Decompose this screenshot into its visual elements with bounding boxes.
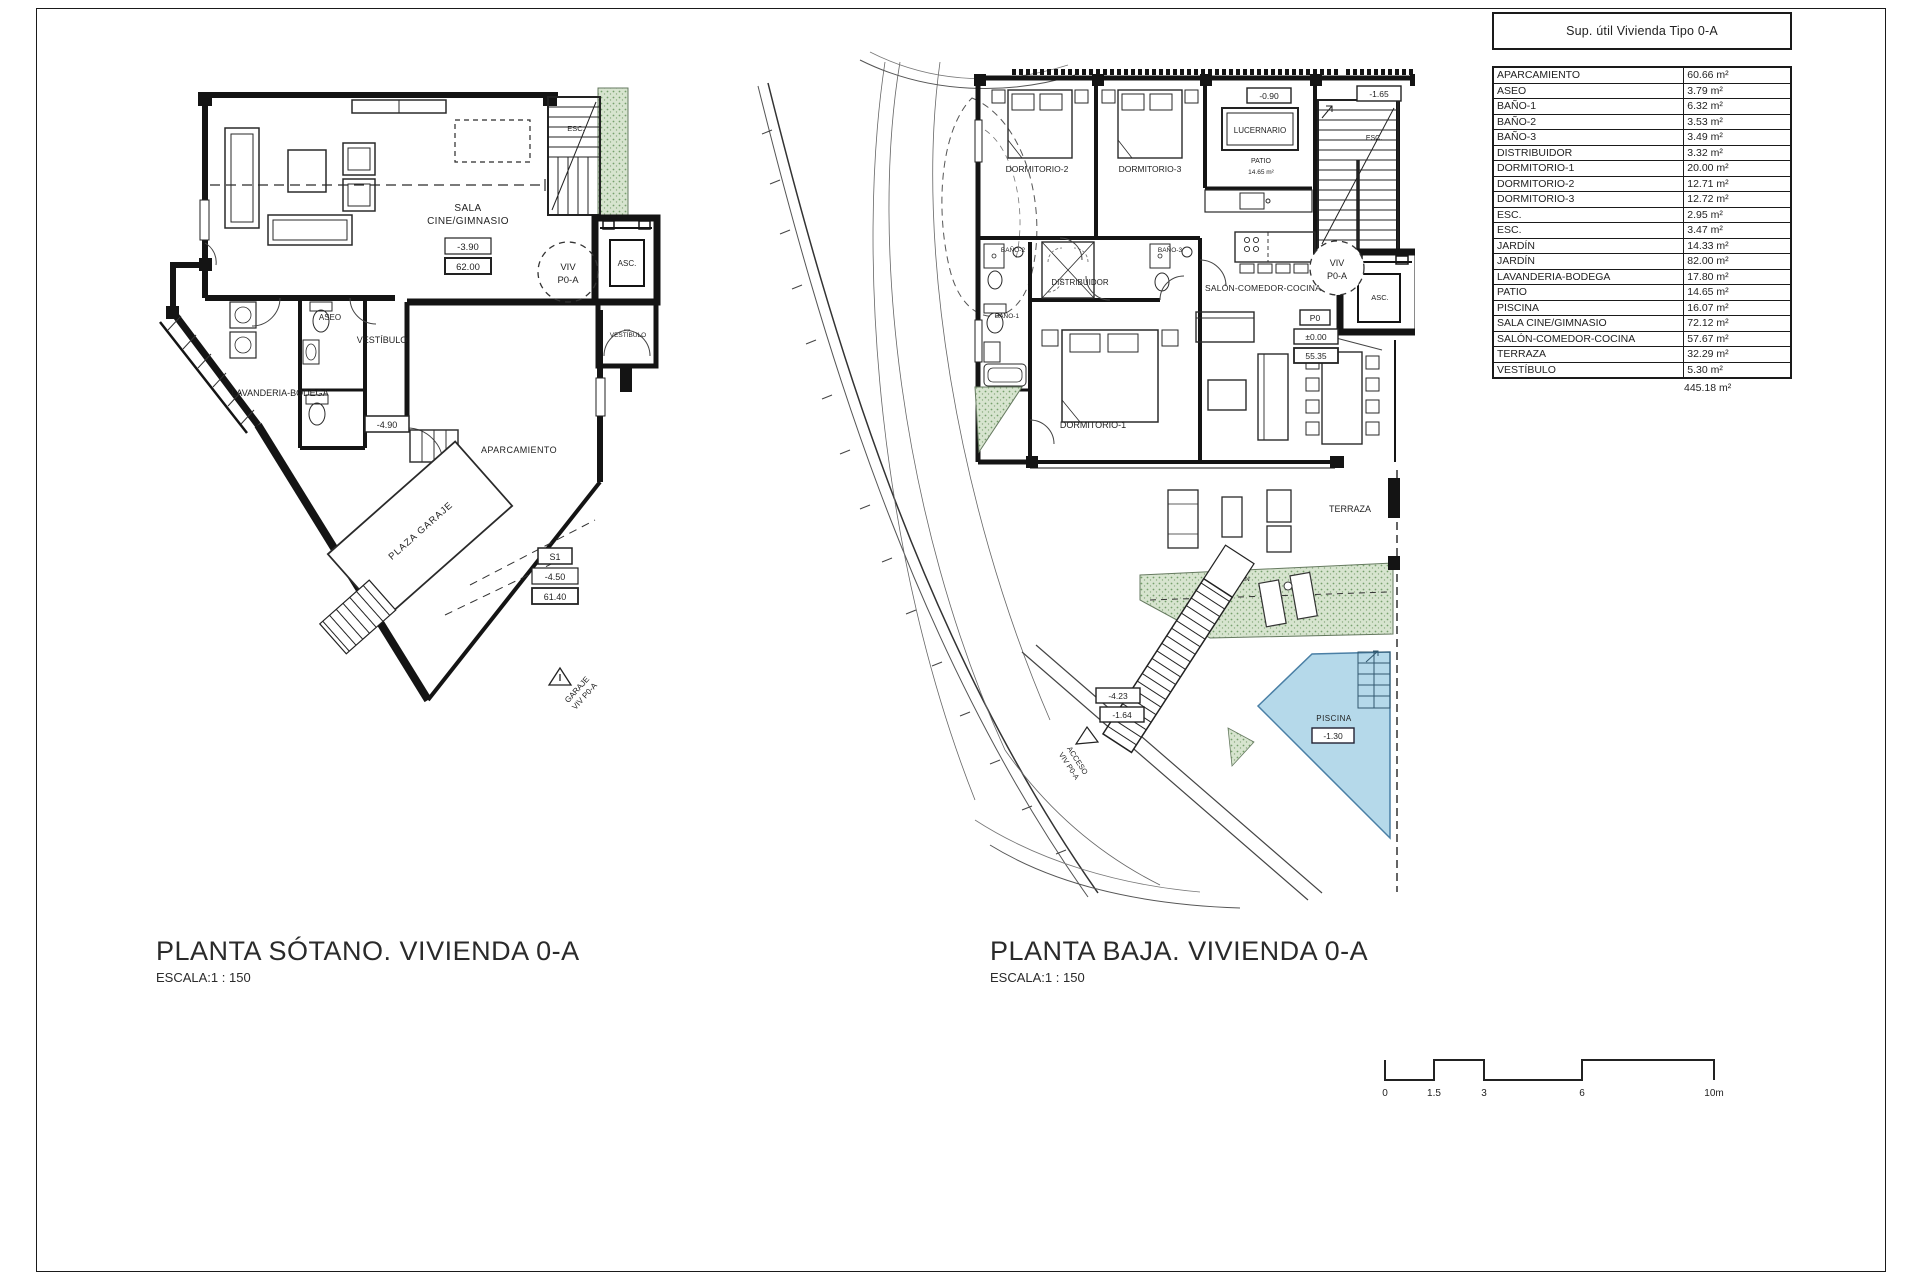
baja-patio: LUCERNARIO PATIO 14.65 m² -0.90 bbox=[1222, 88, 1298, 176]
table-row: JARDÍN82.00 m² bbox=[1493, 254, 1791, 270]
sotano-title: PLANTA SÓTANO. VIVIENDA 0-A bbox=[156, 936, 580, 967]
sotano-title-block: PLANTA SÓTANO. VIVIENDA 0-A ESCALA:1 : 1… bbox=[156, 936, 580, 985]
patio-elev-box: -0.90 bbox=[1259, 91, 1279, 101]
aparcamiento-label: APARCAMIENTO bbox=[481, 445, 557, 455]
p0-box: P0 bbox=[1310, 313, 1321, 323]
baja-stairs: ESC. -1.65 bbox=[1318, 86, 1401, 250]
garage-elev-box: -4.50 bbox=[545, 572, 566, 582]
scale-bar-profile bbox=[1385, 1060, 1714, 1080]
area-value: 14.65 m² bbox=[1684, 285, 1791, 301]
sotano-garden-strip bbox=[598, 88, 628, 218]
area-value: 57.67 m² bbox=[1684, 331, 1791, 347]
table-row: SALÓN-COMEDOR-COCINA57.67 m² bbox=[1493, 331, 1791, 347]
baja-terraza-furniture bbox=[1168, 490, 1291, 552]
area-value: 3.53 m² bbox=[1684, 114, 1791, 130]
salon-area-box: 55.35 bbox=[1305, 351, 1327, 361]
lucernario-label: LUCERNARIO bbox=[1234, 126, 1286, 135]
graphic-scale-bar: 0 1.5 3 6 10m bbox=[1380, 1046, 1725, 1106]
baja-green-triangle bbox=[975, 387, 1022, 452]
area-value: 3.47 m² bbox=[1684, 223, 1791, 239]
dormitorio2-label: DORMITORIO-2 bbox=[1006, 164, 1069, 174]
area-value: 14.33 m² bbox=[1684, 238, 1791, 254]
piscina-elev-box: -1.30 bbox=[1323, 731, 1343, 741]
room-label: BAÑO-3 bbox=[1493, 130, 1684, 146]
scale-tick-0: 0 bbox=[1382, 1088, 1388, 1099]
room-label: PISCINA bbox=[1493, 300, 1684, 316]
scale-tick-4: 10m bbox=[1704, 1088, 1723, 1099]
scale-tick-2: 3 bbox=[1481, 1088, 1487, 1099]
sala-label-2: CINE/GIMNASIO bbox=[427, 216, 509, 227]
table-row: PATIO14.65 m² bbox=[1493, 285, 1791, 301]
room-label: SALÓN-COMEDOR-COCINA bbox=[1493, 331, 1684, 347]
sala-label-1: SALA bbox=[454, 203, 481, 214]
table-row: ESC.2.95 m² bbox=[1493, 207, 1791, 223]
sotano-viv-circle: VIV P0-A bbox=[538, 242, 598, 302]
area-value: 3.32 m² bbox=[1684, 145, 1791, 161]
asc-label: ASC. bbox=[1371, 293, 1389, 302]
baja-terrain-contours bbox=[758, 52, 1240, 908]
viv-label-2: P0-A bbox=[557, 275, 579, 286]
room-label: ASEO bbox=[1493, 83, 1684, 99]
garage-area-box: 61.40 bbox=[544, 592, 567, 602]
dormitorio1-label: DORMITORIO-1 bbox=[1060, 420, 1126, 430]
room-label: JARDÍN bbox=[1493, 238, 1684, 254]
patio-label: PATIO bbox=[1251, 158, 1272, 165]
esc-label: ESC. bbox=[567, 124, 585, 133]
vestibulo-elev-box: -4.90 bbox=[377, 420, 398, 430]
area-value: 60.66 m² bbox=[1684, 67, 1791, 83]
table-row: DORMITORIO-212.71 m² bbox=[1493, 176, 1791, 192]
table-row: TERRAZA32.29 m² bbox=[1493, 347, 1791, 363]
table-row: DORMITORIO-312.72 m² bbox=[1493, 192, 1791, 208]
room-label: DORMITORIO-2 bbox=[1493, 176, 1684, 192]
sala-area-box: 62.00 bbox=[456, 262, 480, 273]
room-label: JARDÍN bbox=[1493, 254, 1684, 270]
room-label: BAÑO-2 bbox=[1493, 114, 1684, 130]
viv-label-2: P0-A bbox=[1327, 271, 1347, 281]
baja-wall-pillars bbox=[974, 74, 1415, 570]
area-value: 12.72 m² bbox=[1684, 192, 1791, 208]
room-label: PATIO bbox=[1493, 285, 1684, 301]
table-row: ESC.3.47 m² bbox=[1493, 223, 1791, 239]
bano3-label: BAÑO-3 bbox=[1158, 245, 1183, 254]
area-value: 72.12 m² bbox=[1684, 316, 1791, 332]
piscina-label: PISCINA bbox=[1316, 714, 1352, 723]
room-label: TERRAZA bbox=[1493, 347, 1684, 363]
patio-area-label: 14.65 m² bbox=[1248, 169, 1274, 176]
plan-baja-drawing: JARDÍN PISCINA -1.30 bbox=[755, 50, 1415, 910]
area-value: 82.00 m² bbox=[1684, 254, 1791, 270]
aseo-label: ASEO bbox=[319, 313, 341, 322]
area-value: 3.79 m² bbox=[1684, 83, 1791, 99]
drawing-sheet: PLAZA GARAJE GARAJE VIV P0-A VIV P0-A S bbox=[0, 0, 1920, 1280]
area-table-total: 445.18 m² bbox=[1684, 379, 1792, 394]
table-row: BAÑO-23.53 m² bbox=[1493, 114, 1791, 130]
baja-wardrobe bbox=[1042, 242, 1094, 298]
table-row: BAÑO-33.49 m² bbox=[1493, 130, 1791, 146]
room-label: APARCAMIENTO bbox=[1493, 67, 1684, 83]
area-value: 6.32 m² bbox=[1684, 99, 1791, 115]
s1-box: S1 bbox=[549, 552, 560, 562]
scale-tick-3: 6 bbox=[1579, 1088, 1585, 1099]
sotano-stairs bbox=[548, 97, 600, 215]
area-value: 17.80 m² bbox=[1684, 269, 1791, 285]
room-label: LAVANDERIA-BODEGA bbox=[1493, 269, 1684, 285]
table-row: SALA CINE/GIMNASIO72.12 m² bbox=[1493, 316, 1791, 332]
lavanderia-label: LAVANDERIA-BODEGA bbox=[231, 388, 328, 398]
sotano-lavanderia-units bbox=[230, 302, 256, 358]
bano2-label: BAÑO-2 bbox=[1001, 245, 1026, 254]
area-value: 32.29 m² bbox=[1684, 347, 1791, 363]
baja-kitchen bbox=[1205, 190, 1315, 273]
area-value: 20.00 m² bbox=[1684, 161, 1791, 177]
table-row: DORMITORIO-120.00 m² bbox=[1493, 161, 1791, 177]
viv-label: VIV bbox=[560, 262, 576, 273]
esc-label: ESC. bbox=[1366, 135, 1382, 142]
table-row: JARDÍN14.33 m² bbox=[1493, 238, 1791, 254]
table-row: DISTRIBUIDOR3.32 m² bbox=[1493, 145, 1791, 161]
scale-tick-1: 1.5 bbox=[1427, 1088, 1441, 1099]
area-value: 12.71 m² bbox=[1684, 176, 1791, 192]
room-label: VESTÍBULO bbox=[1493, 362, 1684, 378]
vestibulo-right-label: VESTÍBULO bbox=[610, 330, 646, 339]
area-table-body: APARCAMIENTO60.66 m²ASEO3.79 m²BAÑO-16.3… bbox=[1493, 67, 1791, 378]
area-value: 3.49 m² bbox=[1684, 130, 1791, 146]
area-table: Sup. útil Vivienda Tipo 0-A APARCAMIENTO… bbox=[1492, 12, 1792, 394]
table-row: APARCAMIENTO60.66 m² bbox=[1493, 67, 1791, 83]
sotano-garage-access: GARAJE VIV P0-A bbox=[549, 668, 599, 712]
table-row: VESTÍBULO5.30 m² bbox=[1493, 362, 1791, 378]
area-value: 5.30 m² bbox=[1684, 362, 1791, 378]
room-label: BAÑO-1 bbox=[1493, 99, 1684, 115]
viv-label: VIV bbox=[1330, 258, 1345, 268]
baja-scale: ESCALA:1 : 150 bbox=[990, 970, 1368, 985]
terraza-label: TERRAZA bbox=[1329, 504, 1371, 514]
scale-bar-labels: 0 1.5 3 6 10m bbox=[1382, 1088, 1724, 1099]
salon-label: SALÓN-COMEDOR-COCINA bbox=[1205, 283, 1321, 293]
sotano-scale: ESCALA:1 : 150 bbox=[156, 970, 580, 985]
dormitorio3-label: DORMITORIO-3 bbox=[1119, 164, 1182, 174]
baja-piscina: PISCINA -1.30 bbox=[1258, 651, 1390, 838]
table-row: PISCINA16.07 m² bbox=[1493, 300, 1791, 316]
area-table-title: Sup. útil Vivienda Tipo 0-A bbox=[1492, 12, 1792, 50]
asc-label: ASC. bbox=[618, 259, 637, 268]
table-row: LAVANDERIA-BODEGA17.80 m² bbox=[1493, 269, 1791, 285]
baja-title-block: PLANTA BAJA. VIVIENDA 0-A ESCALA:1 : 150 bbox=[990, 936, 1368, 985]
table-row: BAÑO-16.32 m² bbox=[1493, 99, 1791, 115]
plan-sotano-drawing: PLAZA GARAJE GARAJE VIV P0-A VIV P0-A S bbox=[150, 55, 710, 745]
room-label: SALA CINE/GIMNASIO bbox=[1493, 316, 1684, 332]
area-table-grid: APARCAMIENTO60.66 m²ASEO3.79 m²BAÑO-16.3… bbox=[1492, 66, 1792, 379]
baja-title: PLANTA BAJA. VIVIENDA 0-A bbox=[990, 936, 1368, 967]
sala-elev-box: -3.90 bbox=[457, 242, 479, 253]
room-label: DORMITORIO-3 bbox=[1493, 192, 1684, 208]
area-value: 16.07 m² bbox=[1684, 300, 1791, 316]
esc-elev-box: -1.65 bbox=[1369, 89, 1389, 99]
room-label: ESC. bbox=[1493, 207, 1684, 223]
room-label: ESC. bbox=[1493, 223, 1684, 239]
exterior-elev-box-2: -1.64 bbox=[1112, 710, 1132, 720]
table-row: ASEO3.79 m² bbox=[1493, 83, 1791, 99]
vestibulo-label: VESTÍBULO bbox=[357, 335, 408, 345]
exterior-elev-box-1: -4.23 bbox=[1108, 691, 1128, 701]
baja-dormitorio-2 bbox=[992, 90, 1088, 158]
baja-dormitorio-3 bbox=[1102, 90, 1198, 158]
room-label: DISTRIBUIDOR bbox=[1493, 145, 1684, 161]
p0-elev-box: ±0.00 bbox=[1305, 332, 1326, 342]
distribuidor-label: DISTRIBUIDOR bbox=[1051, 278, 1109, 287]
area-value: 2.95 m² bbox=[1684, 207, 1791, 223]
baja-dormitorio-1 bbox=[1042, 330, 1178, 422]
bano1-label: BAÑO-1 bbox=[995, 311, 1020, 320]
room-label: DORMITORIO-1 bbox=[1493, 161, 1684, 177]
